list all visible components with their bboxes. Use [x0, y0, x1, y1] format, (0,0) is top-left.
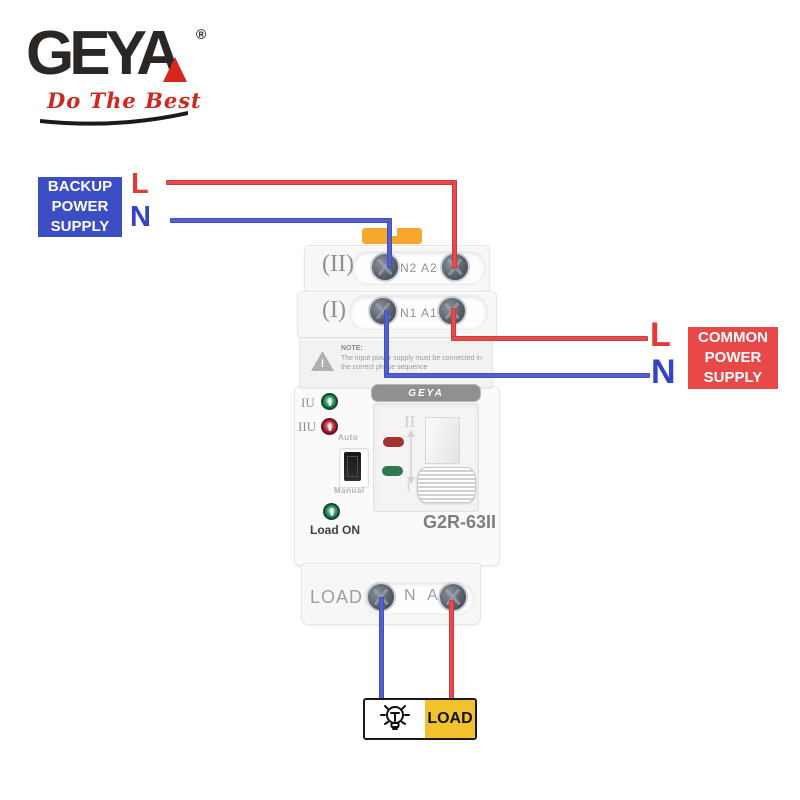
auto-label: Auto	[338, 433, 358, 442]
common-line3: SUPPLY	[688, 368, 778, 388]
iu-label: IU	[301, 395, 315, 411]
registered-mark: ®	[196, 26, 206, 42]
backup-neutral-wire-h	[170, 218, 392, 223]
common-neutral-wire-h	[384, 373, 650, 378]
iu-indicator-led	[321, 393, 338, 410]
position-i-indicator	[382, 466, 403, 476]
load-terminal-text: N A	[404, 587, 442, 605]
position-ii-indicator	[383, 437, 404, 447]
row2-label: (II)	[322, 251, 354, 278]
backup-neutral-wire-v	[387, 218, 392, 268]
device-brand-badge: GEYA	[371, 384, 481, 402]
load-appliance-box: LOAD	[363, 698, 477, 740]
backup-live-wire-h	[166, 180, 457, 185]
wiring-diagram: GEYA ® Do The Best BACKUP POWER SUPPLY L…	[0, 0, 800, 800]
brand-name: GEYA	[26, 18, 176, 89]
backup-supply-label: BACKUP POWER SUPPLY	[38, 177, 122, 237]
backup-line3: SUPPLY	[38, 217, 122, 237]
terminal-n1-screw	[368, 296, 398, 326]
backup-line2: POWER	[38, 197, 122, 217]
din-rail-clip	[362, 228, 422, 244]
common-live-wire-h	[451, 336, 648, 341]
load-on-label: Load ON	[310, 523, 360, 537]
row2-terminal-text: N2 A2	[400, 261, 438, 275]
row1-terminal-text: N1 A1	[400, 306, 438, 320]
model-number: G2R-63II	[423, 512, 496, 533]
backup-neutral-letter: N	[130, 201, 151, 234]
device-load-label: LOAD	[310, 587, 363, 608]
load-live-wire	[449, 600, 454, 699]
row1-label: (I)	[322, 297, 346, 324]
common-line-letter: L	[650, 316, 671, 355]
handle-window	[425, 417, 460, 464]
common-supply-label: COMMON POWER SUPPLY	[688, 327, 778, 389]
panel-position-ii: II	[404, 412, 415, 432]
switch-knob[interactable]	[417, 467, 476, 503]
tagline-swoosh-icon	[40, 110, 192, 126]
load-label: LOAD	[425, 700, 475, 738]
load-on-led	[323, 503, 340, 520]
backup-live-wire-v	[452, 180, 457, 269]
panel-position-i: I	[406, 479, 411, 496]
mode-switch[interactable]	[344, 452, 361, 481]
load-neutral-wire	[379, 597, 384, 700]
terminal-n2-screw	[370, 252, 400, 282]
brand-triangle-icon	[163, 57, 187, 82]
common-line2: POWER	[688, 348, 778, 368]
note-title: NOTE:	[341, 345, 363, 352]
backup-line-letter: L	[131, 168, 149, 201]
lightbulb-icon	[377, 701, 413, 737]
device-brand-text: GEYA	[408, 388, 444, 399]
iiu-label: IIU	[298, 419, 316, 435]
common-line1: COMMON	[688, 328, 778, 348]
note-line1: The input power supply must be connected…	[341, 355, 482, 362]
iiu-indicator-led	[321, 418, 338, 435]
common-neutral-letter: N	[651, 353, 676, 392]
backup-line1: BACKUP	[38, 177, 122, 197]
common-neutral-wire-v	[384, 310, 389, 377]
manual-label: Manual	[334, 486, 365, 495]
load-icon-cell	[365, 700, 425, 738]
direction-arrow-icon	[406, 430, 416, 484]
